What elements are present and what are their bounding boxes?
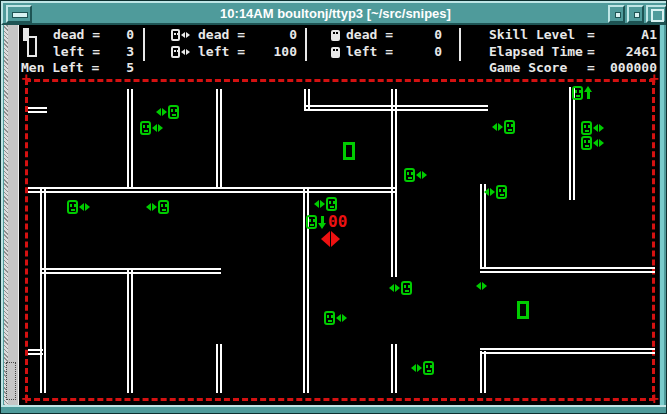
window-frame-right	[659, 25, 667, 405]
scrollbar-thumb[interactable]	[6, 362, 16, 400]
snipe-left-value: 100	[251, 45, 297, 59]
player-right-arrow-icon	[331, 231, 340, 247]
hive-dead-value: 0	[405, 28, 442, 42]
title-bar[interactable]: 10:14AM boultonj/ttyp3 [~/src/snipes]	[1, 1, 667, 25]
snipe-sprite	[572, 86, 593, 100]
snipe-sprite	[581, 136, 604, 150]
elapsed-time-value: 2461	[593, 45, 657, 59]
terminal-window: 10:14AM boultonj/ttyp3 [~/src/snipes] de…	[0, 0, 667, 414]
shade-dot-icon	[634, 12, 640, 18]
window-title: 10:14AM boultonj/ttyp3 [~/src/snipes]	[3, 6, 667, 21]
snipe-sprite	[389, 281, 412, 295]
border-corner: +	[21, 70, 30, 88]
iconify-dot-icon	[615, 12, 621, 18]
snipe-sprite	[581, 121, 604, 135]
maze-wall	[40, 187, 46, 393]
snipe-icon	[171, 29, 190, 41]
skill-level-label: Skill Level	[489, 28, 575, 42]
border-corner: +	[21, 390, 30, 408]
arrow-sprite	[476, 282, 487, 290]
hive-sprite	[517, 301, 529, 319]
maze-wall	[391, 89, 397, 277]
snipe-sprite	[156, 105, 179, 119]
elapsed-time-label: Elapsed Time	[489, 45, 583, 59]
maze-wall	[28, 187, 395, 193]
border-corner: +	[649, 70, 658, 88]
snipe-sprite	[492, 120, 515, 134]
skill-level-value: A1	[593, 28, 657, 42]
hive-sprite	[343, 142, 355, 160]
snipe-sprite	[484, 185, 507, 199]
hive-face-icon	[331, 47, 340, 58]
maze-wall	[304, 89, 310, 109]
status-separator	[143, 28, 145, 61]
player-dead-value: 0	[96, 28, 134, 42]
player-dead-label: dead =	[53, 28, 100, 42]
snipe-sprite	[324, 311, 347, 325]
maze-wall	[28, 107, 47, 113]
snipe-sprite	[314, 197, 337, 211]
snipe-sprite	[404, 168, 427, 182]
maximize-button[interactable]	[646, 5, 667, 23]
player-left-label: left =	[53, 45, 100, 59]
men-left-value: 5	[96, 61, 134, 75]
snipe-left-label: left =	[198, 45, 245, 59]
player-left-arrow-icon	[321, 231, 330, 247]
iconify-button[interactable]	[608, 5, 625, 23]
player-sprite	[321, 231, 340, 247]
shade-button[interactable]	[627, 5, 644, 23]
player-status-row: 00	[306, 214, 347, 230]
hive-dead-label: dead =	[346, 28, 393, 42]
snipe-sprite	[140, 121, 163, 135]
scrollbar-stipple	[4, 25, 8, 405]
hive-left-label: left =	[346, 45, 393, 59]
status-separator	[305, 28, 307, 61]
snipe-dead-value: 0	[251, 28, 297, 42]
snipe-dead-label: dead =	[198, 28, 245, 42]
status-separator	[459, 28, 461, 61]
player-face-icon	[306, 215, 317, 229]
maze-wall	[216, 344, 222, 393]
maze-wall	[569, 87, 575, 200]
game-score-value: 000000	[593, 61, 657, 75]
maze-wall	[391, 344, 397, 393]
maze-wall	[127, 89, 133, 189]
snipe-sprite	[67, 200, 90, 214]
player-lives-icon	[23, 28, 38, 59]
snipe-sprite	[411, 361, 434, 375]
hive-left-value: 0	[405, 45, 442, 59]
snipe-icon	[171, 46, 190, 58]
maze-wall	[480, 267, 655, 273]
player-counter: 00	[328, 214, 347, 230]
men-left-label: Men Left =	[21, 61, 99, 75]
game-score-label: Game Score	[489, 61, 567, 75]
maze-wall	[216, 89, 222, 189]
border-corner: +	[649, 390, 658, 408]
down-arrow-icon	[318, 215, 327, 229]
maze-wall	[127, 268, 133, 393]
hive-face-icon	[331, 30, 340, 41]
maximize-square-icon	[651, 9, 664, 22]
maze-wall	[480, 351, 486, 393]
maze-wall	[480, 348, 655, 354]
snipe-sprite	[146, 200, 169, 214]
terminal-scrollbar[interactable]	[4, 25, 19, 405]
window-frame-bottom	[1, 405, 667, 414]
player-left-value: 3	[96, 45, 134, 59]
